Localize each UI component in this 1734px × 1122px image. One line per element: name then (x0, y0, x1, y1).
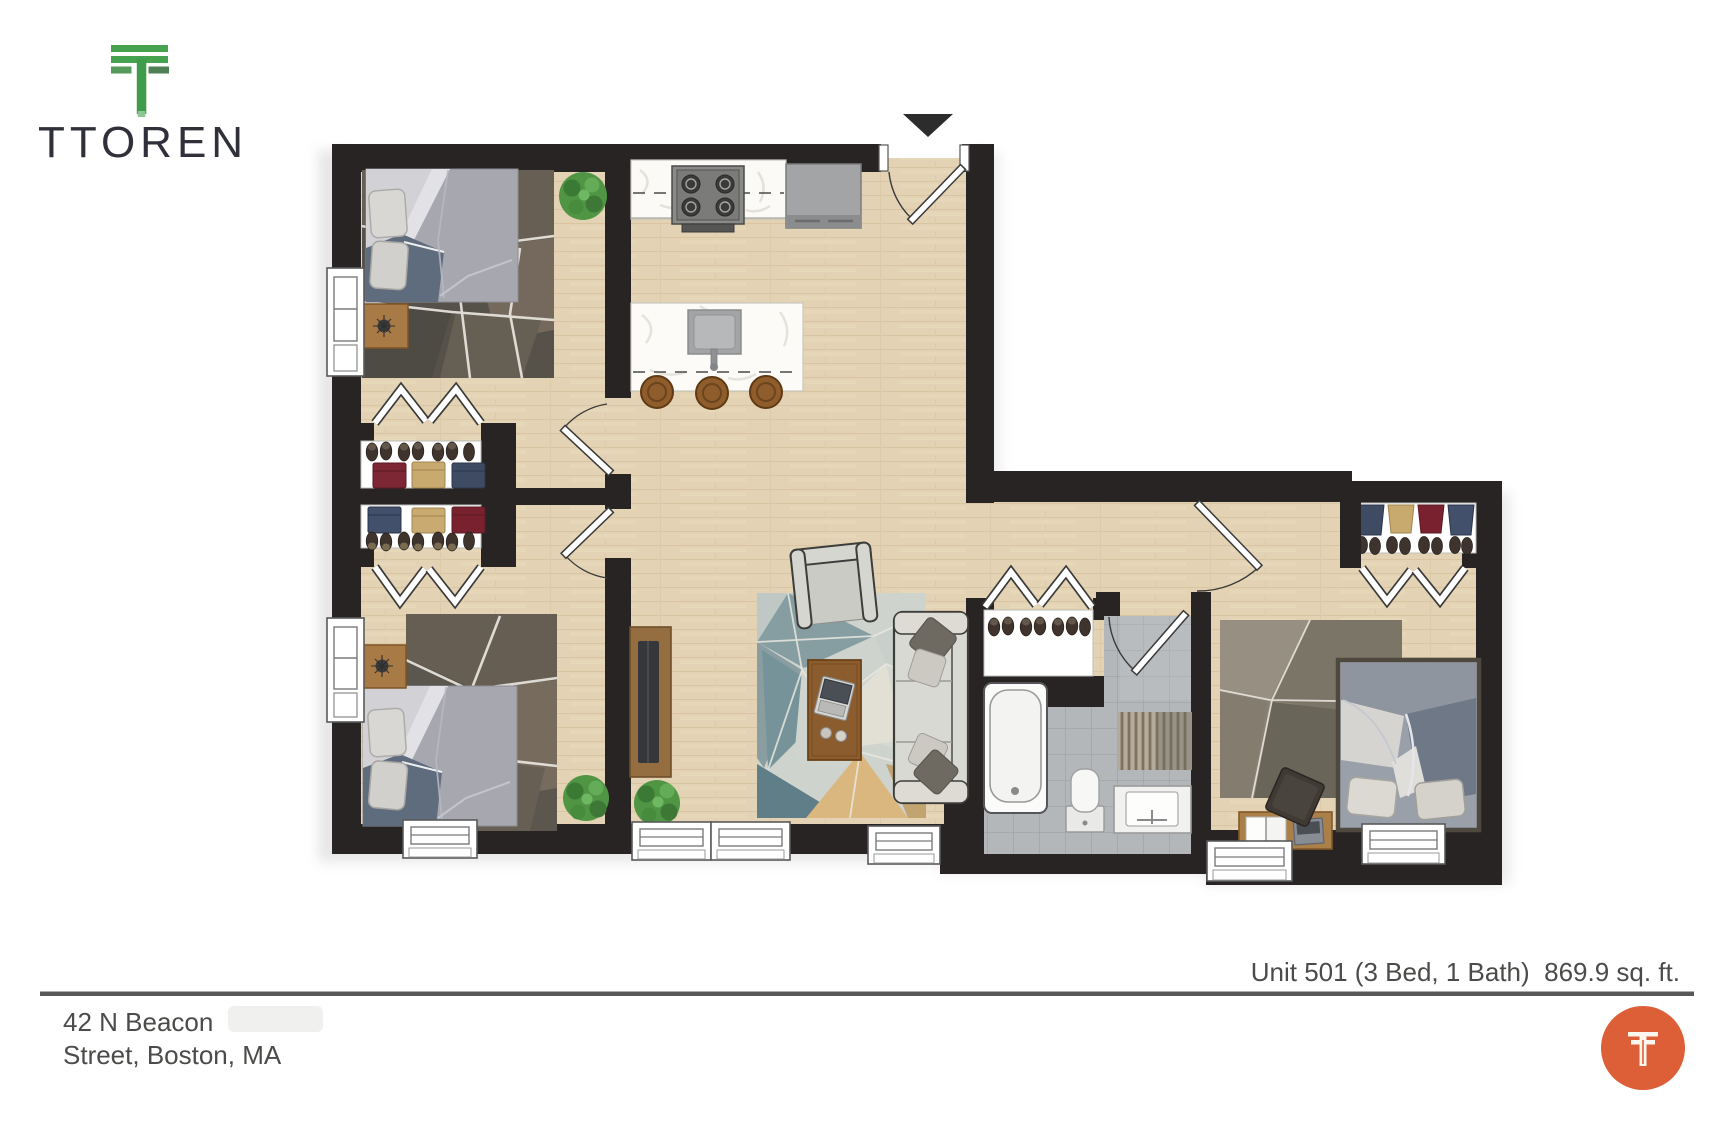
svg-text:42 N Beacon: 42 N Beacon (63, 1007, 213, 1037)
svg-text:Unit 501 (3 Bed, 1 Bath) 869.: Unit 501 (3 Bed, 1 Bath) 869.9 sq. ft. (1251, 957, 1680, 987)
svg-text:Street, Boston, MA: Street, Boston, MA (63, 1040, 282, 1070)
svg-text:TTOREN: TTOREN (38, 118, 248, 167)
